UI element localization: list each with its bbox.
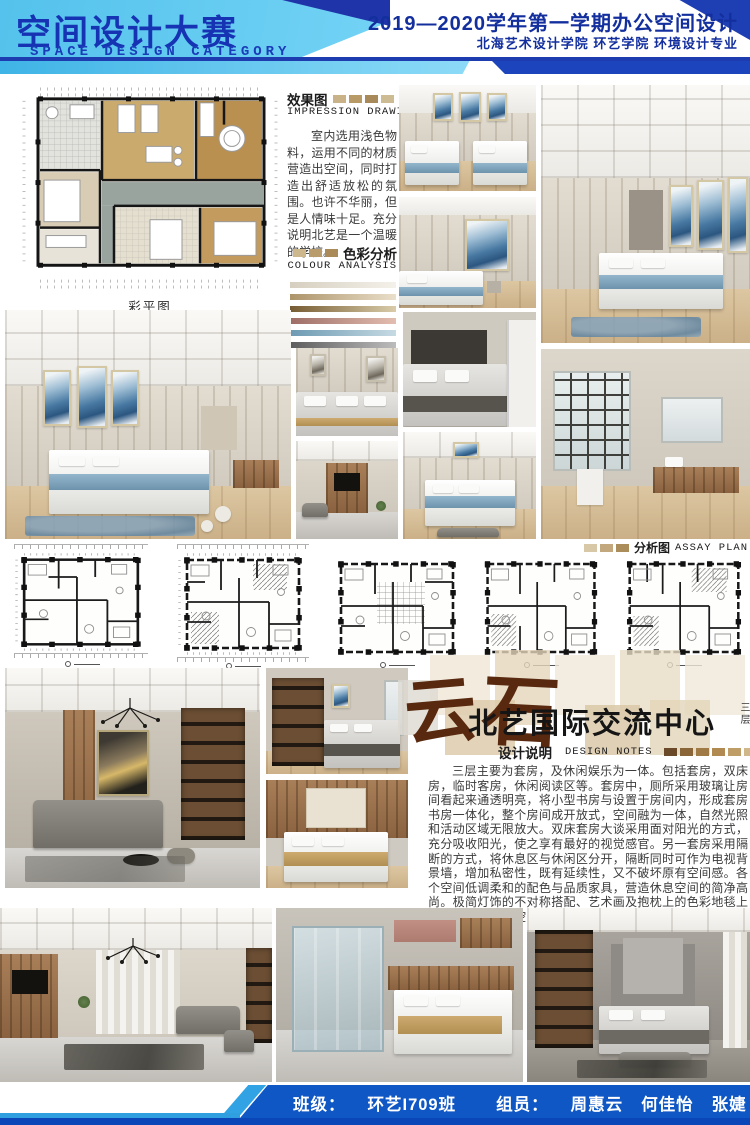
swatch [290,282,396,288]
render-suite-wide [541,85,750,343]
bw-plan-svg [177,552,309,656]
bed [405,141,459,185]
bed [49,450,209,514]
desk [233,460,279,488]
colour-analysis-bars [290,282,396,354]
floor-label: 三层 [736,702,750,732]
mirror [661,397,723,443]
wardrobe [507,320,536,427]
ceiling-layer [296,441,398,461]
bed [599,1006,709,1054]
vanity-counter [653,467,739,493]
render-twin-room-small [399,85,536,191]
render-bedroom-warm [266,780,408,888]
notes-label-row: 设计说明 DESIGN NOTES [498,742,750,762]
member-name: 何佳怡 [641,1091,694,1115]
armchair [302,503,328,517]
tv-screen [334,473,360,491]
ceiling-layer [527,908,750,932]
render-grey-bedroom [527,908,750,1082]
artwork [43,370,71,426]
curtain [723,932,747,1048]
swatch [696,748,709,756]
partition [629,190,663,250]
colour-floor-plan-svg [18,85,282,293]
member-name: 张婕 [712,1091,747,1115]
notes-swatch-strip [664,748,750,756]
poster-board: 空间设计大赛 SPACE DESIGN CATEGORY 2019—2020学年… [0,0,750,1125]
render-twin-room-large [5,310,291,539]
artwork [669,185,693,247]
swatch [290,330,396,336]
dimension-strip [14,544,148,549]
swatch [293,249,306,257]
plant [376,501,386,511]
poster-title-en: SPACE DESIGN CATEGORY [30,44,290,60]
wardrobe [272,678,324,766]
swatch [365,95,378,103]
pink-panel [394,920,456,942]
bw-plan-5 [620,556,748,660]
artwork [111,370,139,426]
chandelier-icon [95,694,165,734]
dimension-strip [177,544,309,549]
chandelier-icon [98,936,168,966]
colour-floor-plan [18,85,282,293]
swatch [325,249,338,257]
artwork [97,730,149,796]
swatch [290,306,396,312]
window [553,371,631,471]
bed [473,141,527,185]
header-cyan-bar [0,61,486,74]
bw-plan-3 [331,556,463,660]
swatch [728,748,741,756]
bed [296,392,398,436]
artwork [487,93,507,121]
swatch [600,544,613,552]
tv-wall [0,954,58,1038]
bed [599,253,723,309]
render-bedroom-dark [266,668,408,774]
swatch [290,318,396,324]
footer-credits: 班级： 环艺I709班 组员： 周惠云 何佳怡 张婕 [293,1091,747,1115]
rug [64,1044,204,1070]
artwork [465,219,509,271]
assay-label-en: ASSAY PLAN [675,542,748,554]
stool [215,506,231,522]
render-headboard-closeup [296,348,398,436]
render-suite-artwall [399,197,536,308]
header-white-slash [463,61,494,74]
swatch [616,544,629,552]
swatch [744,748,750,756]
headboard [388,966,514,990]
artwork [310,354,326,376]
swatch [664,748,677,756]
ceiling-layer [541,85,750,178]
rug [25,516,195,536]
school-line: 北海艺术设计学院 环艺学院 环境设计专业 [477,33,738,52]
dimension-strip [14,653,148,658]
impression-swatch-strip [333,95,394,103]
display-shelf [181,708,245,840]
tv-screen [12,970,48,994]
swatch [584,544,597,552]
bw-plan-svg [14,552,148,652]
bed [403,364,507,426]
class-value: 环艺I709班 [368,1091,457,1115]
wardrobe [535,930,593,1048]
sofa [33,800,163,848]
stool [201,520,213,532]
bw-plan-2 [177,552,309,656]
render-suite-blue-bed [403,432,536,539]
render-tv-lounge-small [296,441,398,539]
assay-label-cn: 分析图 [634,539,670,556]
artwork [366,356,386,382]
ceiling-layer [399,197,536,215]
render-bathroom-window [541,349,750,539]
rug [571,317,701,337]
nightstand [487,281,501,293]
plant [78,996,90,1008]
assay-label-row: 分析图 ASSAY PLAN [558,539,748,556]
bed [399,271,483,305]
member-name: 周惠云 [571,1091,624,1115]
bed [284,832,388,882]
swatch [680,748,693,756]
rug [25,856,185,882]
swatch [381,95,394,103]
plan-caption-mark [62,661,102,667]
class-label: 班级： [293,1091,346,1115]
artwork [459,92,481,122]
impression-body: 室内选用浅色物料，运用不同的材质营造出空间，同时打造出舒适放松的氛围。也许不华丽… [287,128,397,260]
render-living-tv-large [0,908,272,1082]
artwork [433,93,453,121]
swatch [349,95,362,103]
floor-layer [541,486,750,539]
swatch [712,748,725,756]
headboard-panel [623,938,683,994]
render-living-dark [5,668,260,888]
artwork [332,684,350,708]
bookshelf [246,948,272,1043]
artwork [453,442,479,458]
bw-plan-svg [331,556,463,660]
colour-label-en: COLOUR ANALYSIS [287,260,397,272]
bw-plan-4 [478,556,604,660]
armchair [224,1030,254,1052]
artwork [728,177,748,253]
assay-swatch-strip [584,544,629,552]
brand-name: 北艺国际交流中心 [468,700,716,742]
shelf-niche [201,406,237,450]
footer-navy-bar [0,1118,750,1125]
rug [577,1060,707,1078]
towel-rack [577,469,603,505]
bw-plan-svg [620,556,748,660]
colour-swatch-strip [293,249,338,257]
swatch [309,249,322,257]
wall-panel [306,788,366,828]
bench [437,528,499,537]
dimension-strip [177,657,309,662]
render-bath-glass-bed [276,908,523,1082]
swatch [333,95,346,103]
towel [665,457,683,467]
notes-label-cn: 设计说明 [498,742,552,762]
members-label: 组员： [496,1091,549,1115]
artwork [697,180,724,250]
bed [425,480,515,526]
swatch [290,294,396,300]
bed [394,990,512,1054]
course-title: 2019—2020学年第一学期办公空间设计 [368,7,738,36]
glass-shower [292,926,384,1052]
wood-slats [460,918,512,948]
notes-label-en: DESIGN NOTES [565,746,653,758]
bed [324,720,400,768]
bw-plan-1 [14,552,148,652]
header-navy-bar [492,61,750,74]
render-bed-closeup [403,312,536,427]
bw-plan-svg [478,556,604,660]
artwork [77,366,107,428]
